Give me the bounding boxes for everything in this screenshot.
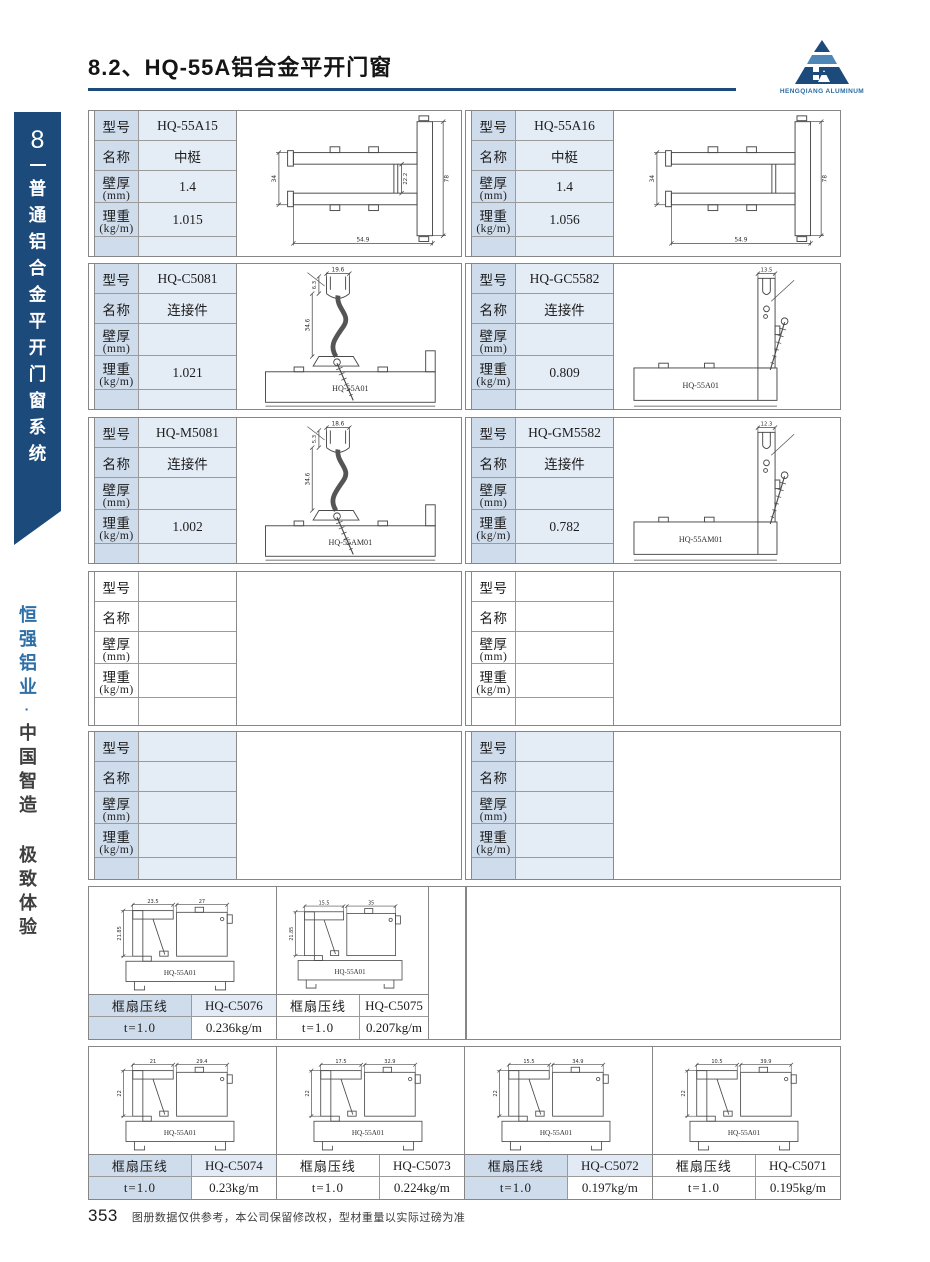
spec-empty-label <box>95 390 139 409</box>
bead-drawing: HQ-55A0115.534.922 <box>465 1047 652 1155</box>
bead-code: HQ-C5073 <box>380 1155 464 1177</box>
profile-spec-table: 型号 HQ-GC5582 名称 连接件 壁厚(mm) 理重(kg/m) 0.80… <box>471 264 614 409</box>
bead-code: HQ-C5074 <box>192 1155 276 1177</box>
svg-text:HQ-55A01: HQ-55A01 <box>352 1129 385 1137</box>
bead-thickness-label: t=1.0 <box>277 1017 360 1039</box>
spec-empty-value <box>516 390 613 409</box>
spec-label-thickness: 壁厚(mm) <box>472 324 516 356</box>
spec-label-weight: 理重(kg/m) <box>95 356 139 390</box>
spec-empty-label <box>472 237 516 256</box>
svg-text:34: 34 <box>272 175 278 183</box>
bead-thickness-label: t=1.0 <box>89 1017 192 1039</box>
spec-value-weight: 1.021 <box>139 356 236 390</box>
profile-row: 型号 HQ-55A15 名称 中梃 壁厚(mm) 1.4 理重(kg/m) 1.… <box>88 110 841 257</box>
profile-drawing: 347854.9 <box>612 112 839 255</box>
svg-text:HQ-55A01: HQ-55A01 <box>164 1129 197 1137</box>
spec-label-thickness: 壁厚(mm) <box>95 478 139 510</box>
profile-drawing: HQ-55AM0112.3 <box>612 419 839 562</box>
spec-empty-label <box>472 390 516 409</box>
spec-label-model: 型号 <box>472 572 516 602</box>
svg-text:34.6: 34.6 <box>305 472 311 485</box>
svg-text:54.9: 54.9 <box>357 237 370 243</box>
spec-empty-value <box>139 237 236 256</box>
spec-value-thickness <box>516 324 613 356</box>
spec-label-model: 型号 <box>95 264 139 294</box>
spec-value-thickness <box>516 632 613 664</box>
technical-drawing-svg: 347854.9 <box>612 112 839 255</box>
svg-text:39.9: 39.9 <box>760 1059 771 1065</box>
bead-code: HQ-C5075 <box>360 995 428 1017</box>
spec-label-thickness: 壁厚(mm) <box>472 632 516 664</box>
svg-text:10.5: 10.5 <box>711 1059 722 1065</box>
bead-thickness-label: t=1.0 <box>653 1177 756 1199</box>
spec-label-weight: 理重(kg/m) <box>472 203 516 237</box>
spec-label-thickness: 壁厚(mm) <box>472 171 516 203</box>
spec-label-weight: 理重(kg/m) <box>472 824 516 858</box>
spec-label-model: 型号 <box>472 264 516 294</box>
spec-value-weight: 0.782 <box>516 510 613 544</box>
spec-value-weight <box>139 824 236 858</box>
slogan-separator: · <box>19 701 35 723</box>
svg-text:12.3: 12.3 <box>761 421 773 427</box>
svg-text:22.2: 22.2 <box>403 173 409 185</box>
spec-label-model: 型号 <box>472 418 516 448</box>
spec-label-weight: 理重(kg/m) <box>472 356 516 390</box>
technical-drawing-svg: HQ-55A0115.534.922 <box>465 1047 652 1155</box>
spec-label-model: 型号 <box>472 732 516 762</box>
spec-empty-label <box>472 544 516 563</box>
spec-empty-value <box>139 858 236 879</box>
spec-value-model <box>139 572 236 602</box>
svg-text:HQ-55A01: HQ-55A01 <box>683 381 719 390</box>
bead-code: HQ-C5076 <box>192 995 276 1017</box>
technical-drawing-svg: HQ-55A0119.66.334.6 <box>235 265 460 408</box>
bead-panel: HQ-55A0123.52721.85 框扇压线 HQ-C5076 t=1.0 … <box>89 887 277 1039</box>
profile-panel: 型号 HQ-GM5582 名称 连接件 壁厚(mm) 理重(kg/m) 0.78… <box>465 417 841 564</box>
svg-text:21.85: 21.85 <box>117 926 123 940</box>
profile-drawing: HQ-55A0113.5 <box>612 265 839 408</box>
spec-value-weight: 1.015 <box>139 203 236 237</box>
bead-weight: 0.224kg/m <box>380 1177 464 1199</box>
spec-label-weight: 理重(kg/m) <box>95 664 139 698</box>
bead-drawing: HQ-55A0115.53521.85 <box>277 887 428 995</box>
spec-value-thickness <box>516 792 613 824</box>
spec-label-name: 名称 <box>472 602 516 632</box>
svg-text:54.9: 54.9 <box>735 237 748 243</box>
bead-name-label: 框扇压线 <box>277 995 360 1017</box>
svg-text:22: 22 <box>493 1090 499 1096</box>
chapter-banner: 8 普通铝合金平开门窗系统 <box>14 112 61 545</box>
profile-drawing <box>235 733 460 878</box>
profile-drawing <box>235 573 460 724</box>
profile-row: 型号 HQ-C5081 名称 连接件 壁厚(mm) 理重(kg/m) 1.021… <box>88 263 841 410</box>
svg-text:HQ-55A01: HQ-55A01 <box>164 969 197 977</box>
spec-empty-value <box>139 390 236 409</box>
profile-drawing: HQ-55A0119.66.334.6 <box>235 265 460 408</box>
spec-label-name: 名称 <box>95 448 139 478</box>
spec-empty-value <box>516 858 613 879</box>
svg-text:78: 78 <box>822 175 828 183</box>
spec-label-thickness: 壁厚(mm) <box>472 792 516 824</box>
technical-drawing-svg: 347854.922.2 <box>235 112 460 255</box>
spec-value-name: 中梃 <box>516 141 613 171</box>
profile-panel: 型号 HQ-M5081 名称 连接件 壁厚(mm) 理重(kg/m) 1.002… <box>88 417 462 564</box>
spec-label-name: 名称 <box>95 762 139 792</box>
svg-text:HQ-55A01: HQ-55A01 <box>540 1129 573 1137</box>
spec-empty-label <box>95 237 139 256</box>
bead-panel: HQ-55A0115.53521.85 框扇压线 HQ-C5075 t=1.0 … <box>277 887 429 1039</box>
technical-drawing-svg: HQ-55AM0118.65.334.6 <box>235 419 460 562</box>
spec-label-name: 名称 <box>95 602 139 632</box>
spec-value-name <box>139 762 236 792</box>
bead-section-top: HQ-55A0123.52721.85 框扇压线 HQ-C5076 t=1.0 … <box>88 886 841 1040</box>
bead-name-label: 框扇压线 <box>89 1155 192 1177</box>
bead-table: 框扇压线 HQ-C5071 t=1.0 0.195kg/m <box>653 1154 840 1199</box>
svg-text:22: 22 <box>681 1090 687 1096</box>
technical-drawing-svg: HQ-55A0110.539.922 <box>653 1047 840 1155</box>
spec-empty-label <box>95 858 139 879</box>
svg-text:34.9: 34.9 <box>572 1059 583 1065</box>
profile-drawing <box>612 573 839 724</box>
spec-label-thickness: 壁厚(mm) <box>95 324 139 356</box>
page-number: 353 <box>88 1206 118 1226</box>
spec-value-model: HQ-GC5582 <box>516 264 613 294</box>
spec-label-model: 型号 <box>95 572 139 602</box>
technical-drawing-svg: HQ-55A0113.5 <box>612 265 839 408</box>
profile-panel: 型号 HQ-55A15 名称 中梃 壁厚(mm) 1.4 理重(kg/m) 1.… <box>88 110 462 257</box>
chapter-number: 8 <box>14 126 61 155</box>
profile-row: 型号 HQ-M5081 名称 连接件 壁厚(mm) 理重(kg/m) 1.002… <box>88 417 841 564</box>
spec-value-thickness <box>139 632 236 664</box>
bead-panel: HQ-55A0110.539.922 框扇压线 HQ-C5071 t=1.0 0… <box>652 1046 841 1200</box>
spec-value-weight: 1.056 <box>516 203 613 237</box>
spec-value-name: 连接件 <box>516 294 613 324</box>
spec-value-name: 中梃 <box>139 141 236 171</box>
bead-name-label: 框扇压线 <box>277 1155 380 1177</box>
spec-value-thickness <box>139 792 236 824</box>
svg-text:23.5: 23.5 <box>147 899 158 905</box>
profile-panel: 型号 名称 壁厚(mm) 理重(kg/m) <box>465 571 841 726</box>
spec-label-thickness: 壁厚(mm) <box>472 478 516 510</box>
spec-empty-value <box>516 544 613 563</box>
spec-value-name: 连接件 <box>516 448 613 478</box>
svg-text:78: 78 <box>444 175 450 183</box>
bead-weight: 0.236kg/m <box>192 1017 276 1039</box>
bead-table: 框扇压线 HQ-C5073 t=1.0 0.224kg/m <box>277 1154 464 1199</box>
spec-empty-value <box>139 698 236 725</box>
svg-text:HQ-55A01: HQ-55A01 <box>335 969 367 976</box>
spec-label-weight: 理重(kg/m) <box>472 510 516 544</box>
spec-label-name: 名称 <box>472 294 516 324</box>
spec-label-name: 名称 <box>472 448 516 478</box>
profile-spec-table: 型号 HQ-M5081 名称 连接件 壁厚(mm) 理重(kg/m) 1.002 <box>94 418 237 563</box>
profile-panel: 型号 HQ-C5081 名称 连接件 壁厚(mm) 理重(kg/m) 1.021… <box>88 263 462 410</box>
spec-label-weight: 理重(kg/m) <box>95 203 139 237</box>
bead-panel: HQ-55A0117.532.922 框扇压线 HQ-C5073 t=1.0 0… <box>276 1046 465 1200</box>
svg-text:HQ-55AM01: HQ-55AM01 <box>329 538 373 547</box>
bead-weight: 0.197kg/m <box>568 1177 652 1199</box>
spec-label-model: 型号 <box>95 732 139 762</box>
svg-text:15.5: 15.5 <box>319 900 330 906</box>
technical-drawing-svg: HQ-55AM0112.3 <box>612 419 839 562</box>
svg-text:15.5: 15.5 <box>523 1059 534 1065</box>
bead-table: 框扇压线 HQ-C5074 t=1.0 0.23kg/m <box>89 1154 276 1199</box>
svg-text:5.3: 5.3 <box>312 435 318 443</box>
bead-weight: 0.207kg/m <box>360 1017 428 1039</box>
brand-name: 恒强铝业 <box>17 605 37 701</box>
svg-text:22: 22 <box>305 1090 311 1096</box>
svg-text:21.85: 21.85 <box>289 927 295 941</box>
svg-text:HQ-55AM01: HQ-55AM01 <box>679 535 723 544</box>
svg-text:18.6: 18.6 <box>332 421 345 427</box>
bead-panel: HQ-55A0115.534.922 框扇压线 HQ-C5072 t=1.0 0… <box>464 1046 653 1200</box>
bead-group-left: HQ-55A0123.52721.85 框扇压线 HQ-C5076 t=1.0 … <box>88 886 466 1040</box>
spec-value-weight <box>516 824 613 858</box>
profile-spec-table: 型号 名称 壁厚(mm) 理重(kg/m) <box>471 732 614 879</box>
technical-drawing-svg: HQ-55A0117.532.922 <box>277 1047 464 1155</box>
profile-spec-table: 型号 HQ-55A15 名称 中梃 壁厚(mm) 1.4 理重(kg/m) 1.… <box>94 111 237 256</box>
svg-text:27: 27 <box>199 899 205 905</box>
spec-value-model: HQ-C5081 <box>139 264 236 294</box>
bead-name-label: 框扇压线 <box>89 995 192 1017</box>
spec-empty-value <box>139 544 236 563</box>
spec-value-weight <box>516 664 613 698</box>
spec-value-name: 连接件 <box>139 294 236 324</box>
svg-text:32.9: 32.9 <box>384 1059 395 1065</box>
svg-text:34.6: 34.6 <box>305 318 311 331</box>
spec-empty-label <box>472 698 516 725</box>
svg-text:34: 34 <box>650 175 656 183</box>
technical-drawing-svg: HQ-55A0115.53521.85 <box>277 887 428 995</box>
bead-table: 框扇压线 HQ-C5075 t=1.0 0.207kg/m <box>277 994 428 1039</box>
bead-drawing: HQ-55A0117.532.922 <box>277 1047 464 1155</box>
spec-value-model: HQ-M5081 <box>139 418 236 448</box>
spec-label-model: 型号 <box>95 111 139 141</box>
spec-empty-value <box>516 698 613 725</box>
spec-label-name: 名称 <box>472 762 516 792</box>
footer-note: 图册数据仅供参考，本公司保留修改权，型材重量以实际过磅为准 <box>132 1209 466 1225</box>
page-footer: 353 图册数据仅供参考，本公司保留修改权，型材重量以实际过磅为准 <box>88 1206 465 1226</box>
spec-value-name <box>139 602 236 632</box>
spec-label-weight: 理重(kg/m) <box>95 510 139 544</box>
spec-label-thickness: 壁厚(mm) <box>95 792 139 824</box>
spec-value-name <box>516 602 613 632</box>
svg-text:13.5: 13.5 <box>761 267 773 273</box>
spec-label-thickness: 壁厚(mm) <box>95 632 139 664</box>
empty-panel <box>466 886 841 1040</box>
svg-text:21: 21 <box>150 1059 156 1065</box>
brand-slogan-vertical: 恒强铝业·中国智造 极致体验 <box>14 583 61 963</box>
slogan-text: 中国智造 极致体验 <box>17 723 37 941</box>
profile-spec-table: 型号 名称 壁厚(mm) 理重(kg/m) <box>471 572 614 725</box>
profile-row: 型号 名称 壁厚(mm) 理重(kg/m) 型号 名称 壁厚(mm) 理重(kg… <box>88 731 841 880</box>
spec-value-model <box>139 732 236 762</box>
bead-drawing: HQ-55A0110.539.922 <box>653 1047 840 1155</box>
spec-label-weight: 理重(kg/m) <box>472 664 516 698</box>
spec-value-model: HQ-55A15 <box>139 111 236 141</box>
spec-value-weight: 1.002 <box>139 510 236 544</box>
catalog-content: 型号 HQ-55A15 名称 中梃 壁厚(mm) 1.4 理重(kg/m) 1.… <box>88 0 841 1262</box>
svg-text:17.5: 17.5 <box>335 1059 346 1065</box>
profile-spec-table: 型号 名称 壁厚(mm) 理重(kg/m) <box>94 572 237 725</box>
profile-panel: 型号 HQ-55A16 名称 中梃 壁厚(mm) 1.4 理重(kg/m) 1.… <box>465 110 841 257</box>
spec-value-thickness: 1.4 <box>139 171 236 203</box>
series-title-vertical: 普通铝合金平开门窗系统 <box>25 179 50 471</box>
bead-thickness-label: t=1.0 <box>89 1177 192 1199</box>
profile-spec-table: 型号 HQ-55A16 名称 中梃 壁厚(mm) 1.4 理重(kg/m) 1.… <box>471 111 614 256</box>
spec-value-thickness <box>139 324 236 356</box>
spec-value-name <box>516 762 613 792</box>
spec-value-model <box>516 732 613 762</box>
spec-value-name: 连接件 <box>139 448 236 478</box>
profile-spec-table: 型号 名称 壁厚(mm) 理重(kg/m) <box>94 732 237 879</box>
svg-text:29.4: 29.4 <box>196 1059 207 1065</box>
spec-value-model: HQ-GM5582 <box>516 418 613 448</box>
spec-value-model <box>516 572 613 602</box>
svg-text:HQ-55A01: HQ-55A01 <box>728 1129 761 1137</box>
bead-panel: HQ-55A012129.422 框扇压线 HQ-C5074 t=1.0 0.2… <box>88 1046 277 1200</box>
bead-weight: 0.195kg/m <box>756 1177 840 1199</box>
spec-value-model: HQ-55A16 <box>516 111 613 141</box>
profile-spec-table: 型号 HQ-GM5582 名称 连接件 壁厚(mm) 理重(kg/m) 0.78… <box>471 418 614 563</box>
technical-drawing-svg: HQ-55A0123.52721.85 <box>89 887 276 995</box>
spec-value-thickness <box>516 478 613 510</box>
spec-empty-label <box>472 858 516 879</box>
svg-text:22: 22 <box>117 1090 123 1096</box>
svg-text:HQ-55A01: HQ-55A01 <box>332 384 368 393</box>
spec-value-thickness <box>139 478 236 510</box>
profile-panel: 型号 名称 壁厚(mm) 理重(kg/m) <box>465 731 841 880</box>
spec-label-model: 型号 <box>95 418 139 448</box>
svg-text:35: 35 <box>368 900 374 906</box>
spec-label-weight: 理重(kg/m) <box>95 824 139 858</box>
bead-table: 框扇压线 HQ-C5072 t=1.0 0.197kg/m <box>465 1154 652 1199</box>
chapter-divider <box>30 164 46 166</box>
spec-value-thickness: 1.4 <box>516 171 613 203</box>
spec-label-name: 名称 <box>472 141 516 171</box>
bead-thickness-label: t=1.0 <box>277 1177 380 1199</box>
bead-thickness-label: t=1.0 <box>465 1177 568 1199</box>
bead-drawing: HQ-55A0123.52721.85 <box>89 887 276 995</box>
technical-drawing-svg: HQ-55A012129.422 <box>89 1047 276 1155</box>
bead-code: HQ-C5071 <box>756 1155 840 1177</box>
profile-panel: 型号 名称 壁厚(mm) 理重(kg/m) <box>88 571 462 726</box>
profile-drawing <box>612 733 839 878</box>
spec-label-name: 名称 <box>95 141 139 171</box>
spec-empty-label <box>95 544 139 563</box>
bead-table: 框扇压线 HQ-C5076 t=1.0 0.236kg/m <box>89 994 276 1039</box>
profile-panel: 型号 名称 壁厚(mm) 理重(kg/m) <box>88 731 462 880</box>
spec-value-weight: 0.809 <box>516 356 613 390</box>
bead-name-label: 框扇压线 <box>653 1155 756 1177</box>
profile-spec-table: 型号 HQ-C5081 名称 连接件 壁厚(mm) 理重(kg/m) 1.021 <box>94 264 237 409</box>
svg-text:19.6: 19.6 <box>332 267 345 273</box>
profile-drawing: 347854.922.2 <box>235 112 460 255</box>
bead-weight: 0.23kg/m <box>192 1177 276 1199</box>
profile-panel: 型号 HQ-GC5582 名称 连接件 壁厚(mm) 理重(kg/m) 0.80… <box>465 263 841 410</box>
svg-text:6.3: 6.3 <box>312 281 318 289</box>
profile-drawing: HQ-55AM0118.65.334.6 <box>235 419 460 562</box>
bead-section-bottom: HQ-55A012129.422 框扇压线 HQ-C5074 t=1.0 0.2… <box>88 1046 841 1200</box>
spec-value-weight <box>139 664 236 698</box>
bead-code: HQ-C5072 <box>568 1155 652 1177</box>
bead-name-label: 框扇压线 <box>465 1155 568 1177</box>
profile-row: 型号 名称 壁厚(mm) 理重(kg/m) 型号 名称 壁厚(mm) 理重(kg… <box>88 571 841 726</box>
spec-empty-value <box>516 237 613 256</box>
spec-empty-label <box>95 698 139 725</box>
bead-drawing: HQ-55A012129.422 <box>89 1047 276 1155</box>
spec-label-thickness: 壁厚(mm) <box>95 171 139 203</box>
spec-label-name: 名称 <box>95 294 139 324</box>
spec-label-model: 型号 <box>472 111 516 141</box>
